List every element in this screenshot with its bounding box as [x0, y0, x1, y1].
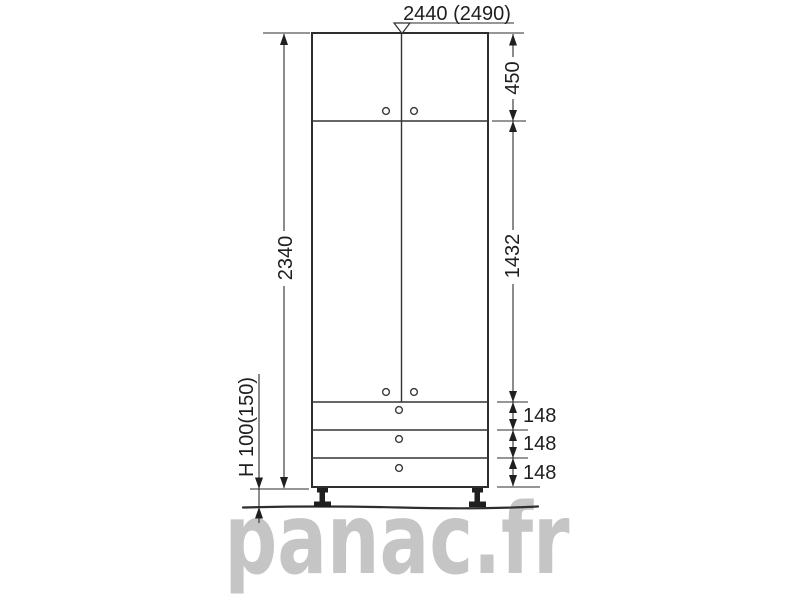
leg-left-stem	[320, 492, 326, 502]
arrow-down-icon	[509, 391, 517, 402]
cabinet-body	[312, 33, 488, 487]
arrow-up-icon	[509, 34, 517, 46]
leg-left-top-flange	[317, 488, 328, 493]
drawer-handle-3-icon	[396, 465, 403, 472]
leg-right-stem	[475, 492, 481, 502]
top-dimension-label: 2440 (2490)	[403, 3, 511, 25]
drawer-height-label-2: 148	[523, 433, 556, 455]
top-width-dimension: 2440 (2490)	[394, 3, 514, 34]
upper-door-handle-right-icon	[411, 108, 418, 115]
right-dimension-chain: 450 1432 148 148 148	[489, 33, 556, 487]
leg-height-label: H 100(150)	[236, 377, 258, 477]
tall-door-handle-right-icon	[411, 389, 418, 396]
tall-doors-height-label: 1432	[502, 234, 524, 279]
drawer-handle-2-icon	[396, 436, 403, 443]
wardrobe-technical-drawing: panac.fr 2440 (2490)	[0, 0, 800, 600]
upper-doors-height-label: 450	[502, 61, 524, 94]
tall-door-handle-left-icon	[383, 389, 390, 396]
arrow-up-icon	[509, 458, 517, 469]
technical-drawing-page: panac.fr 2440 (2490)	[0, 0, 800, 600]
drawer-height-label-3: 148	[523, 462, 556, 484]
cabinet-outline	[312, 33, 488, 487]
arrow-down-icon	[509, 447, 517, 458]
drawer-height-label-1: 148	[523, 405, 556, 427]
body-height-label: 2340	[275, 236, 297, 281]
arrow-up-icon	[280, 34, 288, 46]
upper-door-handle-left-icon	[383, 108, 390, 115]
leg-left-base-flange	[314, 502, 331, 508]
arrow-up-icon	[509, 121, 517, 132]
arrow-up-icon	[509, 430, 517, 441]
drawer-handle-1-icon	[396, 407, 403, 414]
arrow-down-icon	[509, 110, 517, 121]
leg-right-top-flange	[472, 488, 483, 493]
leg-right-base-flange	[469, 502, 486, 508]
arrow-down-icon	[509, 419, 517, 430]
arrow-up-icon	[509, 402, 517, 413]
watermark-text: panac.fr	[225, 483, 571, 597]
